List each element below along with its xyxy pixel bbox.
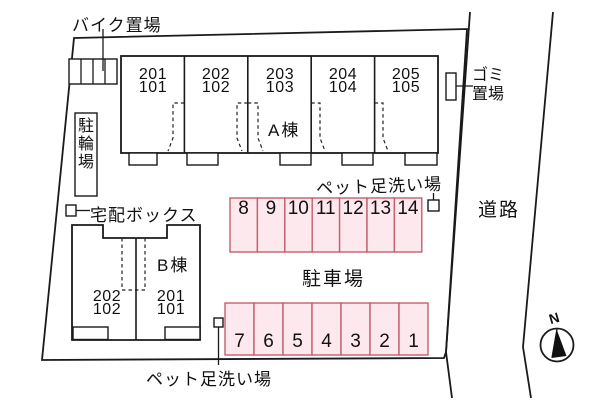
- stall-number: 8: [230, 199, 257, 219]
- stall-number: 7: [225, 332, 254, 352]
- unit-label-a-202-102: 202 102: [196, 68, 236, 94]
- road-label: 道路: [478, 195, 520, 222]
- garbage-area-box: [446, 73, 456, 100]
- building-a-dashed-partition: [311, 103, 325, 151]
- stall-number: 4: [312, 332, 341, 352]
- unit-label-b-201-101: 201 101: [151, 290, 191, 316]
- building-a-porch: [187, 153, 218, 165]
- road-left-boundary: [446, 12, 470, 398]
- unit-lower-number: 105: [386, 81, 426, 94]
- stall-number: 11: [312, 199, 339, 219]
- garbage-label-line2: 置場: [472, 85, 504, 104]
- delivery-box-marker: [66, 205, 76, 216]
- bicycle-parking-label: 駐輪場: [77, 117, 95, 193]
- building-a-porch: [280, 153, 311, 165]
- unit-lower-number: 102: [87, 303, 127, 316]
- building-a-dashed-partition: [168, 103, 184, 151]
- garbage-label-line1: ゴミ: [472, 66, 504, 85]
- building-a-dashed-partition: [248, 103, 263, 151]
- building-a-dashed-partition: [375, 103, 388, 151]
- garbage-area-label: ゴミ 置場: [472, 66, 504, 104]
- stall-number: 6: [254, 332, 283, 352]
- unit-lower-number: 104: [323, 81, 363, 94]
- unit-label-b-202-102: 202 102: [87, 290, 127, 316]
- building-a-porch: [129, 153, 157, 165]
- site-plan: バイク置場 ゴミ 置場 駐輪場 宅配ボックス ペット足洗い場 ペット足洗い場 駐…: [0, 0, 600, 400]
- delivery-box-label: 宅配ボックス: [90, 201, 198, 226]
- unit-label-a-201-101: 201 101: [133, 68, 173, 94]
- unit-label-a-204-104: 204 104: [323, 68, 363, 94]
- parking-lot-label: 駐車場: [302, 264, 365, 291]
- pet-wash-top-marker: [428, 200, 439, 211]
- north-arrow-icon: [541, 329, 574, 362]
- unit-lower-number: 101: [151, 303, 191, 316]
- stall-number: 10: [285, 199, 312, 219]
- stall-number: 2: [370, 332, 399, 352]
- pet-wash-bottom-label: ペット足洗い場: [146, 365, 272, 390]
- building-b-porch: [73, 327, 108, 340]
- building-b-dashed-partition: [122, 238, 145, 290]
- unit-lower-number: 102: [196, 81, 236, 94]
- stall-number: 3: [341, 332, 370, 352]
- unit-lower-number: 101: [133, 81, 173, 94]
- building-b-name: B棟: [157, 251, 189, 276]
- bike-parking-label: バイク置場: [72, 11, 162, 36]
- building-a-dashed-partition: [237, 103, 248, 151]
- stall-number: 5: [283, 332, 312, 352]
- pet-wash-bottom-marker: [214, 318, 223, 327]
- unit-label-a-203-103: 203 103: [260, 68, 300, 94]
- building-a-porch: [405, 153, 437, 165]
- unit-lower-number: 103: [260, 81, 300, 94]
- building-b-porch: [165, 327, 200, 340]
- stall-number: 12: [340, 199, 367, 219]
- pet-wash-top-label: ペット足洗い場: [316, 170, 443, 199]
- stall-number: 13: [367, 199, 394, 219]
- building-a-name: A棟: [268, 116, 300, 141]
- stall-number: 14: [394, 199, 421, 219]
- unit-label-a-205-105: 205 105: [386, 68, 426, 94]
- building-a-porch: [342, 153, 373, 165]
- stall-number: 9: [257, 199, 284, 219]
- stall-number: 1: [399, 332, 428, 352]
